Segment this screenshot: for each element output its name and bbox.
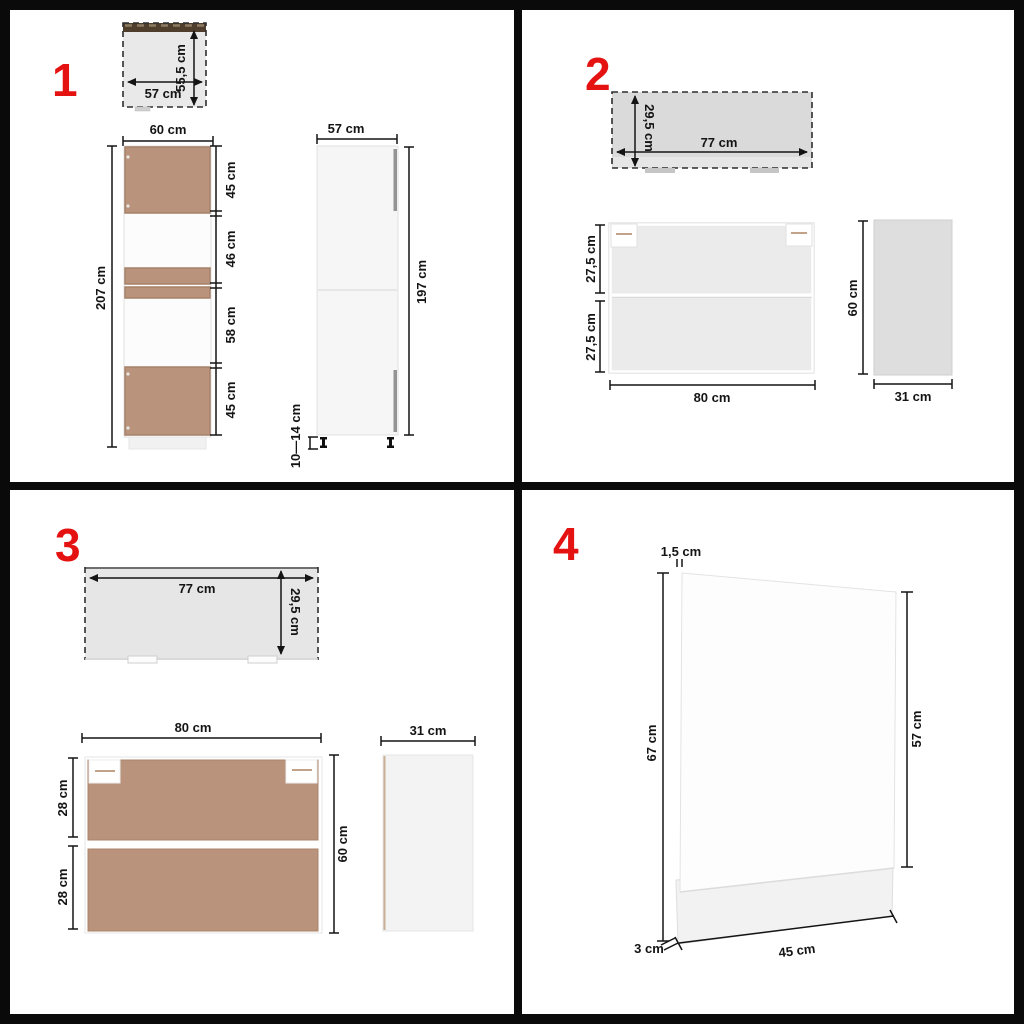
q2-segment-1-label: 27,5 cm [583,235,598,283]
q4-dim-plinth: 3 cm [634,938,678,956]
q2-side-height-label: 60 cm [845,280,860,317]
q2-top-view-front-edge [613,157,811,167]
q1-segment-2-label: 46 cm [223,231,238,268]
q1-side-height-label: 197 cm [414,260,429,304]
q1-front-width-label: 60 cm [150,122,187,137]
q1-side-view: 57 cm 197 cm 10 [288,121,429,468]
q2-dim-side-width: 31 cm [874,379,952,404]
q1-dim-front-width: 60 cm [123,122,213,146]
q3-front-height-label: 60 cm [335,826,350,863]
item-number-2: 2 [585,48,611,100]
q1-front-bottom-door [125,367,210,435]
q2-top-view-tab-right [750,168,779,173]
q2-top-depth-label: 29,5 cm [642,104,657,152]
q2-top-width-label: 77 cm [701,135,738,150]
q1-adjustable-feet [320,437,394,448]
q4-thickness-label: 1,5 cm [661,544,701,559]
q2-segment-2-label: 27,5 cm [583,313,598,361]
q1-front-drawer [125,268,210,284]
quadrant-3-wall-cabinet-open: 3 77 cm 29,5 cm 80 cm [10,489,514,1014]
q4-width-label: 45 cm [778,941,816,960]
q1-top-width-label: 57 cm [145,86,182,101]
q2-side-width-label: 31 cm [895,389,932,404]
q2-top-view: 29,5 cm 77 cm [612,92,812,173]
quadrant-4-dishwasher-panel: 4 1,5 cm 67 cm 57 cm 45 cm [521,489,1014,1014]
q2-front-view: 27,5 cm 27,5 cm 80 cm [583,223,815,405]
q2-side-view: 60 cm 31 cm [845,220,952,404]
q3-top-view-tab-left [128,656,157,663]
q2-side-body [874,220,952,375]
q1-top-view: 55,5 cm 57 cm [123,23,206,111]
q4-plinth-label: 3 cm [634,941,664,956]
q4-dim-thickness: 1,5 cm [661,544,701,567]
q2-top-view-body [612,92,812,168]
q1-side-edge-bottom [394,370,398,432]
q1-side-width-label: 57 cm [328,121,365,136]
item-number-3: 3 [55,519,81,571]
q3-front-back-panel-lower [88,849,318,931]
q3-front-view: 80 cm 28 cm 28 cm [55,720,350,933]
q1-top-view-tab [135,107,150,111]
q3-segment-2-label: 28 cm [55,869,70,906]
q1-top-depth-label: 55,5 cm [173,44,188,92]
q2-top-view-tab-left [645,168,675,173]
q3-side-view: 31 cm [381,723,475,931]
q3-side-body [383,755,473,931]
q4-dim-door-height: 57 cm [901,592,924,867]
q1-side-edge-top [394,149,398,211]
product-dimension-sheet: 1 55,5 cm 57 cm 60 cm [0,0,1024,1024]
quadrant-1-tall-cabinet: 1 55,5 cm 57 cm 60 cm [10,10,514,482]
q2-dim-front-width: 80 cm [610,380,815,405]
q4-dim-height: 67 cm [644,573,669,941]
q1-segment-3-label: 58 cm [223,307,238,344]
item-number-4: 4 [553,518,579,570]
q1-dim-side-height: 197 cm [404,147,429,435]
q3-top-width-label: 77 cm [179,581,216,596]
q3-side-width-label: 31 cm [410,723,447,738]
q3-top-view: 77 cm 29,5 cm [85,567,318,663]
q4-door-height-label: 57 cm [909,711,924,748]
q3-top-view-tab-right [248,656,277,663]
quadrant-2-wall-cabinet: 2 29,5 cm 77 cm [521,10,1014,482]
q1-front-plinth [129,437,206,449]
q1-dim-legs: 10—14 cm [288,404,318,468]
q3-dim-side-width: 31 cm [381,723,475,746]
q2-dim-front-segments: 27,5 cm 27,5 cm [583,225,605,372]
item-number-1: 1 [52,54,78,106]
q1-front-view: 60 cm 207 cm [93,122,238,449]
q2-dim-side-height: 60 cm [845,221,868,374]
q1-front-drawer-2 [125,287,210,298]
q3-segment-1-label: 28 cm [55,780,70,817]
q3-front-back-panel-upper [88,760,318,840]
q3-dim-front-segments: 28 cm 28 cm [55,758,78,929]
q1-legs-label: 10—14 cm [288,404,303,468]
q1-dim-side-width: 57 cm [317,121,397,144]
q1-front-height-label: 207 cm [93,266,108,310]
q4-height-label: 67 cm [644,725,659,762]
q1-dim-front-height: 207 cm [93,146,117,447]
q2-front-width-label: 80 cm [694,390,731,405]
q3-dim-front-height: 60 cm [329,755,350,933]
q1-segment-1-label: 45 cm [223,162,238,199]
q4-main-panel [680,573,896,892]
q1-front-top-door [125,147,210,213]
q1-dim-front-segments: 45 cm 46 cm 58 cm 45 cm [210,146,238,435]
q1-segment-4-label: 45 cm [223,382,238,419]
q3-top-depth-label: 29,5 cm [288,588,303,636]
q3-front-width-label: 80 cm [175,720,212,735]
q3-dim-front-width: 80 cm [82,720,321,743]
